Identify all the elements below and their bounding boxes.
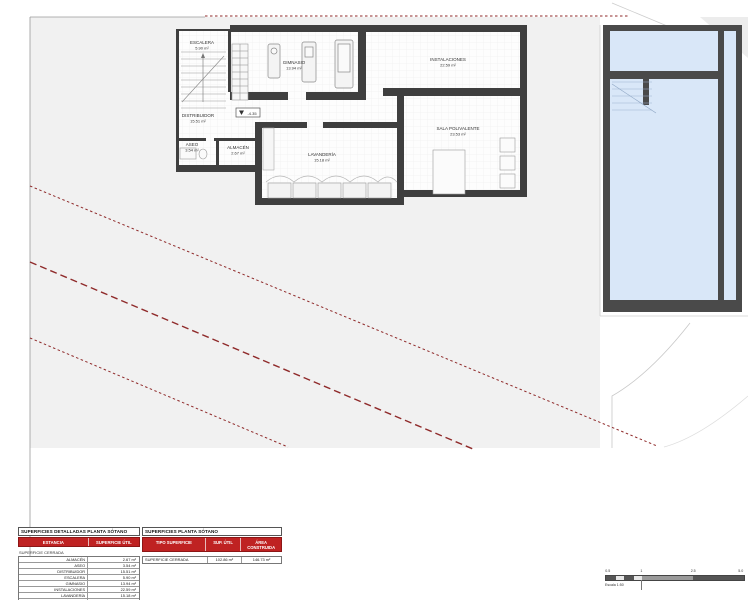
pool-side-channel	[724, 31, 736, 300]
room-label-gimnasio: GIMNASIO	[283, 60, 306, 65]
scale-label-0: 0.5	[605, 569, 610, 573]
summary-table-row: SUPERFICIE CERRADA 102.86 m² 146.73 m²	[142, 556, 282, 564]
room-label-lavanderia: LAVANDERÍA	[308, 151, 336, 157]
room-area-almacen: 2.67 m²	[231, 151, 245, 156]
summary-table-title: SUPERFICIES PLANTA SÓTANO	[142, 527, 282, 536]
summary-util-value: 102.86 m²	[208, 557, 243, 563]
level-marker: -4.35	[236, 108, 260, 117]
header-estancia: ESTANCIA	[19, 538, 89, 546]
terrain-contours	[612, 323, 748, 448]
storage-shelves	[232, 44, 248, 100]
scale-label-3: 5.0	[738, 569, 743, 573]
pool-upper-basin	[610, 31, 718, 71]
pool-main-basin	[610, 79, 718, 300]
floor-plan-drawing: -4.35 ESCALERA 5.90 m² GIMNASIO 13.94 m²…	[0, 0, 748, 600]
scale-label-1: 1	[640, 569, 642, 573]
room-label-distribuidor: DISTRIBUIDOR	[182, 113, 215, 118]
scale-labels: 0.5 1 2.5 5.0	[605, 569, 745, 574]
room-area-gimnasio: 13.94 m²	[286, 66, 302, 71]
room-label-sala-polivalente: SALA POLIVALENTE	[437, 126, 480, 131]
room-area-sala-polivalente: 23.53 m²	[450, 132, 466, 137]
detailed-surfaces-table: SUPERFICIES DETALLADAS PLANTA SÓTANO EST…	[18, 527, 140, 600]
header-superficie-util: SUPERFICIE ÚTIL	[89, 538, 139, 546]
scale-bar-segments	[605, 575, 745, 581]
scale-tick	[641, 580, 642, 590]
scale-label-2: 2.5	[691, 569, 696, 573]
swimming-pool	[600, 25, 748, 316]
room-area-distribuidor: 15.51 m²	[190, 119, 206, 124]
room-area-aseo: 3.54 m²	[185, 148, 199, 153]
level-marker-value: -4.35	[247, 111, 257, 116]
summary-table-header: TIPO SUPERFICIE SUP. ÚTIL ÁREA CONSTRUID…	[142, 537, 282, 552]
graphic-scale-bar: 0.5 1 2.5 5.0 Escala 1:50	[605, 569, 745, 593]
header-tipo-superficie: TIPO SUPERFICIE	[143, 538, 206, 551]
summary-construida-value: 146.73 m²	[242, 557, 281, 563]
plan-sheet: -4.35 ESCALERA 5.90 m² GIMNASIO 13.94 m²…	[0, 0, 748, 600]
section-superficie-cerrada: SUPERFICIE CERRADA	[19, 550, 140, 555]
detailed-table-header: ESTANCIA SUPERFICIE ÚTIL	[18, 537, 140, 547]
room-label-escalera: ESCALERA	[190, 40, 214, 45]
summary-surfaces-table: SUPERFICIES PLANTA SÓTANO TIPO SUPERFICI…	[142, 527, 282, 564]
summary-tipo-value: SUPERFICIE CERRADA	[143, 557, 208, 563]
room-label-instalaciones: INSTALACIONES	[430, 57, 466, 62]
scale-caption: Escala 1:50	[605, 583, 745, 587]
room-area-escalera: 5.90 m²	[195, 46, 209, 51]
room-area-instalaciones: 22.59 m²	[440, 63, 456, 68]
header-area-construida: ÁREA CONSTRUIDA	[241, 538, 281, 551]
room-area-lavanderia: 15.18 m²	[314, 158, 330, 163]
header-sup-util: SUP. ÚTIL	[206, 538, 242, 551]
detailed-table-title: SUPERFICIES DETALLADAS PLANTA SÓTANO	[18, 527, 140, 536]
room-label-aseo: ASEO	[186, 142, 199, 147]
detailed-table-rows: ALMACÉN 2.67 m² ASEO 3.54 m² DISTRIBUIDO…	[18, 556, 140, 600]
laundry-appliances	[268, 183, 391, 198]
room-label-almacen: ALMACÉN	[227, 144, 249, 150]
